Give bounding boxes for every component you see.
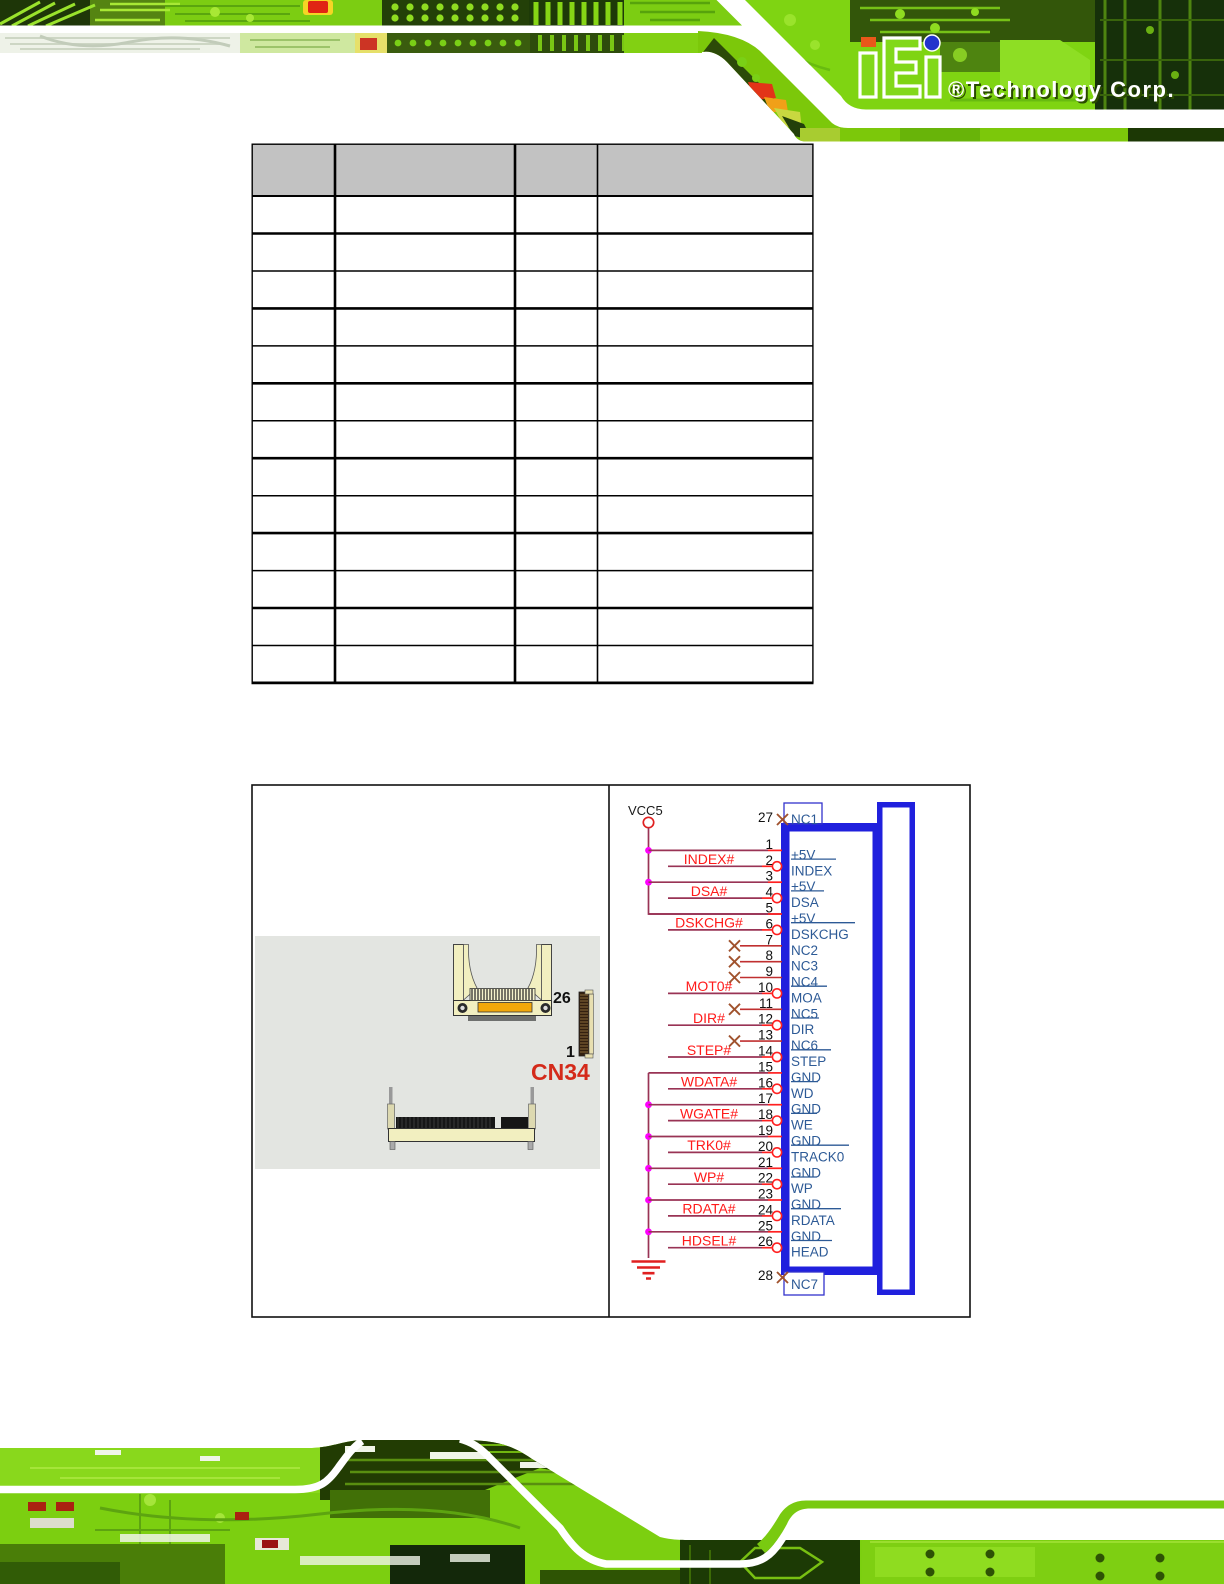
svg-text:15: 15 <box>758 1059 773 1074</box>
svg-text:RDATA: RDATA <box>791 1213 835 1228</box>
svg-text:GND: GND <box>791 1070 821 1085</box>
svg-text:DIR#: DIR# <box>693 1010 725 1026</box>
svg-text:WP: WP <box>791 1181 813 1196</box>
svg-text:RDATA#: RDATA# <box>682 1201 735 1217</box>
svg-text:DSKCHG: DSKCHG <box>791 927 849 942</box>
svg-text:DSKCHG#: DSKCHG# <box>675 915 743 931</box>
svg-text:TRACK0: TRACK0 <box>791 1149 844 1164</box>
svg-text:14: 14 <box>758 1044 774 1059</box>
svg-text:NC7: NC7 <box>791 1277 818 1292</box>
svg-text:MOA: MOA <box>791 990 822 1005</box>
svg-text:26: 26 <box>553 990 571 1007</box>
svg-text:WE: WE <box>791 1118 813 1133</box>
svg-text:INDEX#: INDEX# <box>684 851 735 867</box>
svg-text:STEP#: STEP# <box>687 1042 732 1058</box>
svg-text:DSA: DSA <box>791 895 819 910</box>
svg-text:®Technology Corp.: ®Technology Corp. <box>948 77 1175 102</box>
svg-text:20: 20 <box>758 1139 773 1154</box>
svg-text:WP#: WP# <box>694 1169 725 1185</box>
svg-text:3: 3 <box>765 869 773 884</box>
svg-text:MOT0#: MOT0# <box>686 978 733 994</box>
svg-text:21: 21 <box>758 1155 773 1170</box>
svg-text:WDATA#: WDATA# <box>681 1074 737 1090</box>
svg-text:11: 11 <box>759 996 773 1011</box>
svg-text:17: 17 <box>758 1091 773 1106</box>
svg-text:27: 27 <box>758 810 773 825</box>
svg-text:1: 1 <box>765 837 773 852</box>
svg-text:HDSEL#: HDSEL# <box>682 1233 737 1249</box>
svg-text:22: 22 <box>758 1171 773 1186</box>
svg-text:GND: GND <box>791 1229 821 1244</box>
svg-text:25: 25 <box>758 1218 773 1233</box>
svg-text:13: 13 <box>758 1028 773 1043</box>
svg-text:4: 4 <box>765 885 773 900</box>
svg-text:NC1: NC1 <box>791 812 818 827</box>
svg-text:19: 19 <box>758 1123 773 1138</box>
svg-text:24: 24 <box>758 1202 774 1217</box>
svg-text:NC5: NC5 <box>791 1006 818 1021</box>
svg-text:5: 5 <box>765 901 773 916</box>
svg-text:TRK0#: TRK0# <box>687 1137 731 1153</box>
svg-text:8: 8 <box>765 948 773 963</box>
svg-text:26: 26 <box>758 1234 773 1249</box>
svg-text:23: 23 <box>758 1187 773 1202</box>
svg-text:NC3: NC3 <box>791 959 818 974</box>
svg-text:GND: GND <box>791 1165 821 1180</box>
svg-text:2: 2 <box>765 853 773 868</box>
svg-text:16: 16 <box>758 1075 773 1090</box>
svg-text:GND: GND <box>791 1134 821 1149</box>
svg-text:+5V: +5V <box>791 879 815 894</box>
svg-text:NC2: NC2 <box>791 943 818 958</box>
svg-text:28: 28 <box>758 1268 773 1283</box>
svg-text:GND: GND <box>791 1197 821 1212</box>
svg-text:NC4: NC4 <box>791 975 818 990</box>
svg-text:+5V: +5V <box>791 847 815 862</box>
svg-text:CN34: CN34 <box>531 1059 590 1085</box>
svg-text:VCC5: VCC5 <box>628 803 663 818</box>
svg-text:DSA#: DSA# <box>691 883 728 899</box>
svg-text:9: 9 <box>765 964 773 979</box>
svg-text:WGATE#: WGATE# <box>680 1105 738 1121</box>
svg-text:10: 10 <box>758 980 773 995</box>
svg-text:WD: WD <box>791 1086 814 1101</box>
svg-text:12: 12 <box>758 1012 773 1027</box>
svg-text:INDEX: INDEX <box>791 863 832 878</box>
svg-text:GND: GND <box>791 1102 821 1117</box>
svg-text:6: 6 <box>765 916 773 931</box>
svg-text:DIR: DIR <box>791 1022 815 1037</box>
svg-text:7: 7 <box>765 932 773 947</box>
svg-text:STEP: STEP <box>791 1054 826 1069</box>
svg-text:+5V: +5V <box>791 911 815 926</box>
svg-text:18: 18 <box>758 1107 773 1122</box>
svg-text:NC6: NC6 <box>791 1038 818 1053</box>
svg-text:HEAD: HEAD <box>791 1245 829 1260</box>
